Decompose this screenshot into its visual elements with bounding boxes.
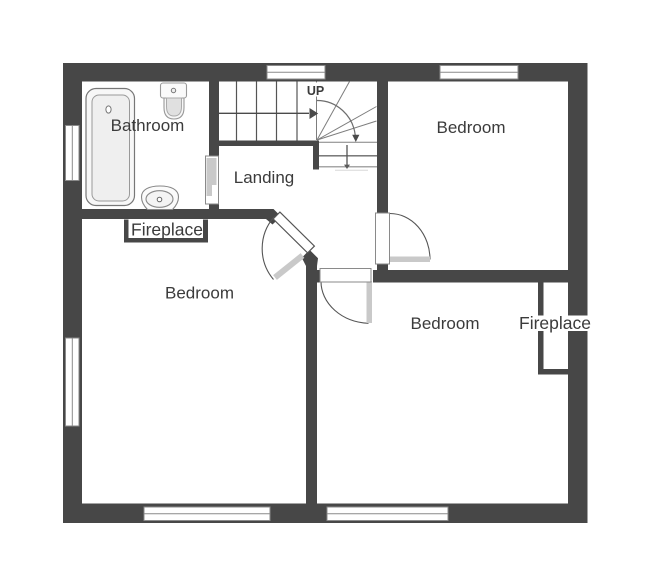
svg-text:Bathroom: Bathroom — [111, 116, 185, 135]
svg-text:Fireplace: Fireplace — [131, 220, 203, 240]
svg-text:Landing: Landing — [234, 168, 295, 187]
svg-text:Bedroom: Bedroom — [437, 118, 506, 137]
svg-text:Fireplace: Fireplace — [519, 313, 591, 333]
svg-text:Bedroom: Bedroom — [165, 284, 234, 303]
svg-text:UP: UP — [307, 84, 324, 98]
svg-text:Bedroom: Bedroom — [411, 314, 480, 333]
